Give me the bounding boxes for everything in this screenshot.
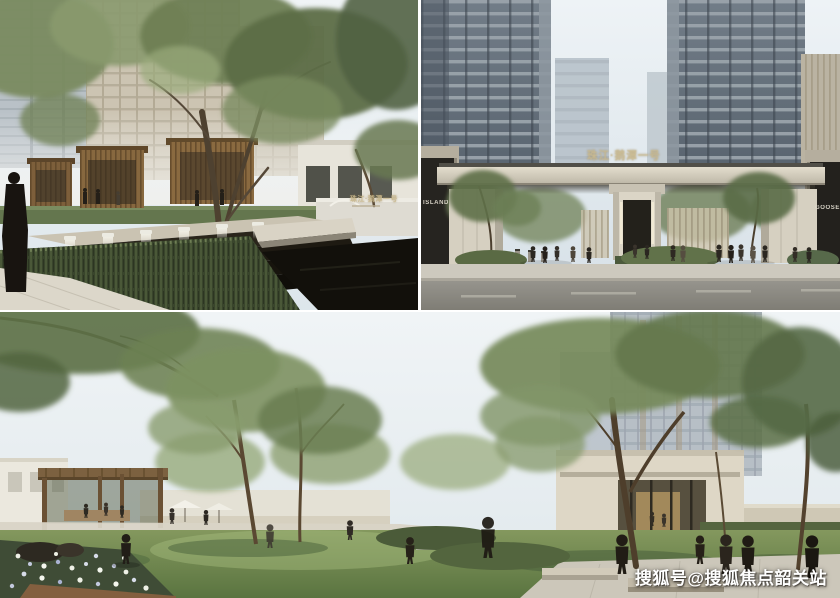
- road: [421, 264, 840, 310]
- panel-waterscape: 珠江·鹅潭一号: [0, 0, 418, 310]
- panel-courtyard: 搜狐号@搜狐焦点韶关站: [0, 312, 840, 598]
- portal-lamp-strip: [620, 202, 623, 244]
- pergola: [38, 468, 168, 530]
- panel-gate: 珠江·鹅潭一号 ISLAND GOOSE: [421, 0, 840, 310]
- courtyard-illustration: [0, 312, 840, 598]
- portal-lamp-strip: [652, 202, 655, 244]
- gate-illustration: [421, 0, 840, 310]
- rendering-collage: 珠江·鹅潭一号: [0, 0, 840, 598]
- foreground-person-silhouette: [2, 172, 28, 292]
- waterscape-illustration: [0, 0, 418, 310]
